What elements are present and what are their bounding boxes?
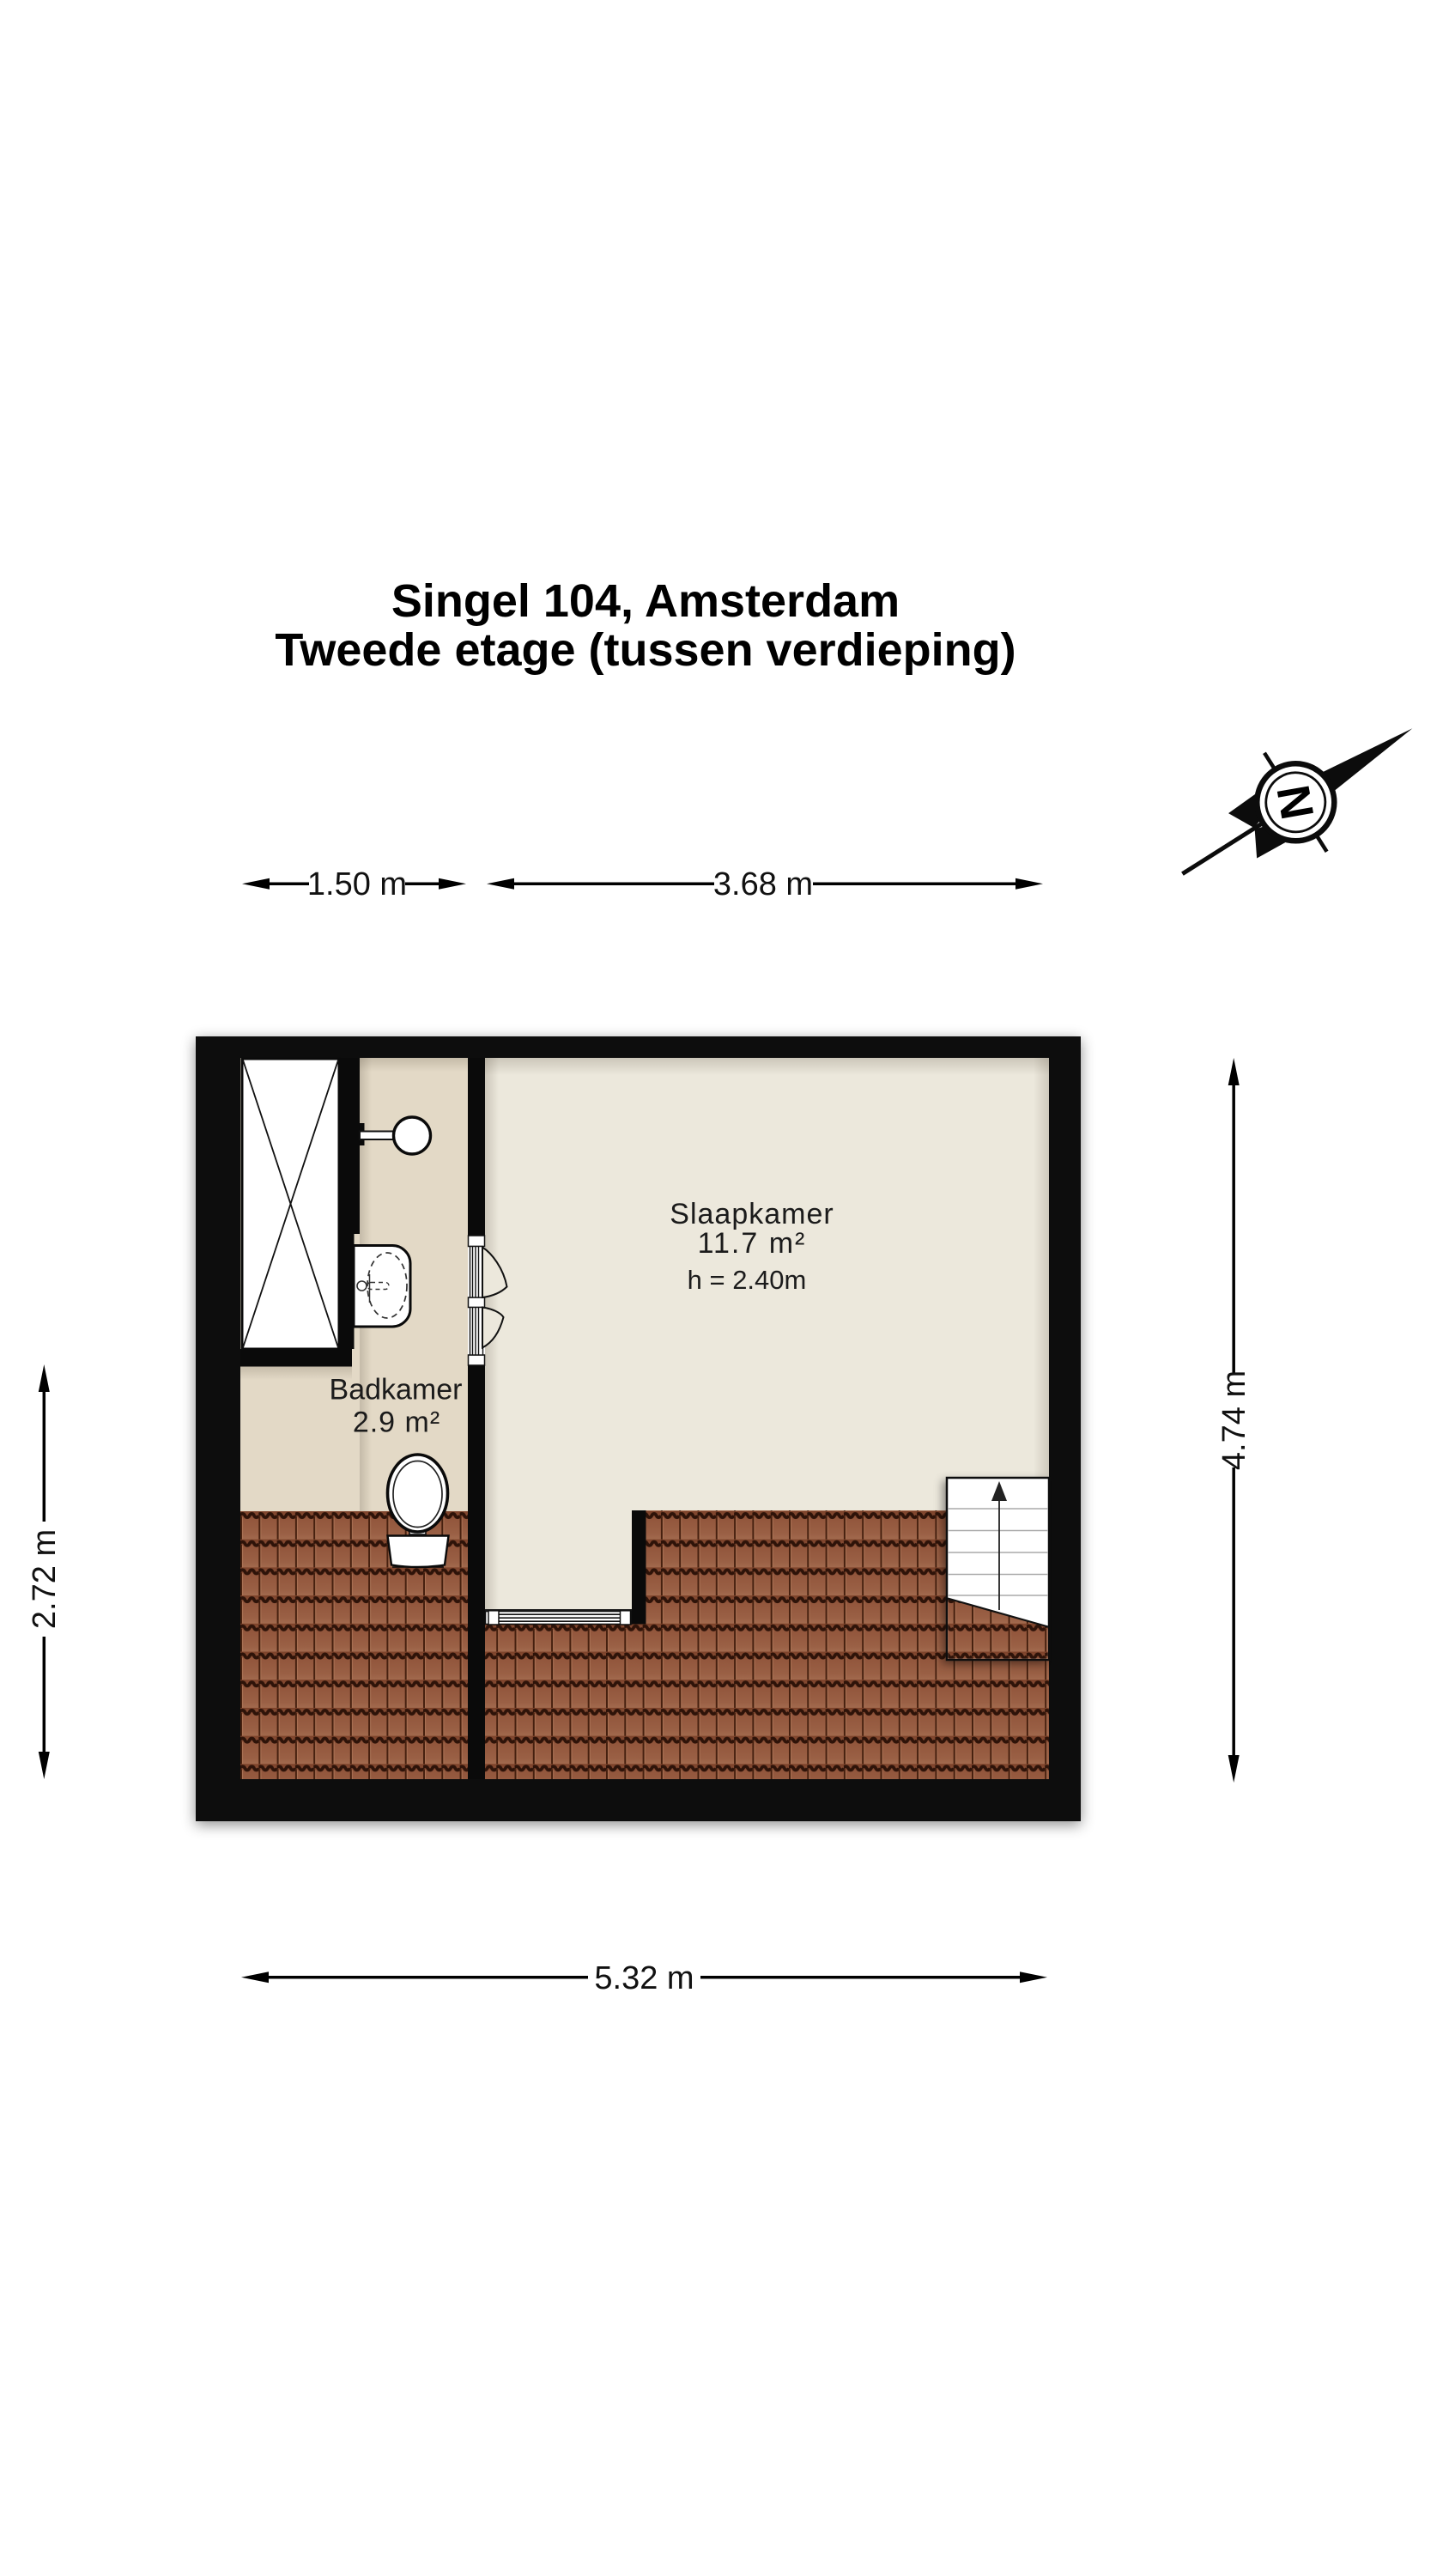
svg-text:Singel 104, Amsterdam: Singel 104, Amsterdam <box>391 575 900 627</box>
svg-text:3.68 m: 3.68 m <box>713 866 813 902</box>
svg-text:Badkamer: Badkamer <box>330 1374 463 1406</box>
svg-text:2.9 m²: 2.9 m² <box>353 1406 440 1439</box>
svg-text:5.32 m: 5.32 m <box>594 1960 694 1996</box>
svg-text:2.72 m: 2.72 m <box>27 1529 63 1629</box>
svg-text:4.74 m: 4.74 m <box>1216 1370 1252 1470</box>
svg-text:h = 2.40m: h = 2.40m <box>688 1265 807 1295</box>
svg-text:1.50 m: 1.50 m <box>307 866 407 902</box>
svg-text:Tweede etage (tussen verdiepin: Tweede etage (tussen verdieping) <box>275 624 1016 676</box>
svg-text:11.7 m²: 11.7 m² <box>698 1227 807 1260</box>
svg-text:Slaapkamer: Slaapkamer <box>670 1198 834 1230</box>
